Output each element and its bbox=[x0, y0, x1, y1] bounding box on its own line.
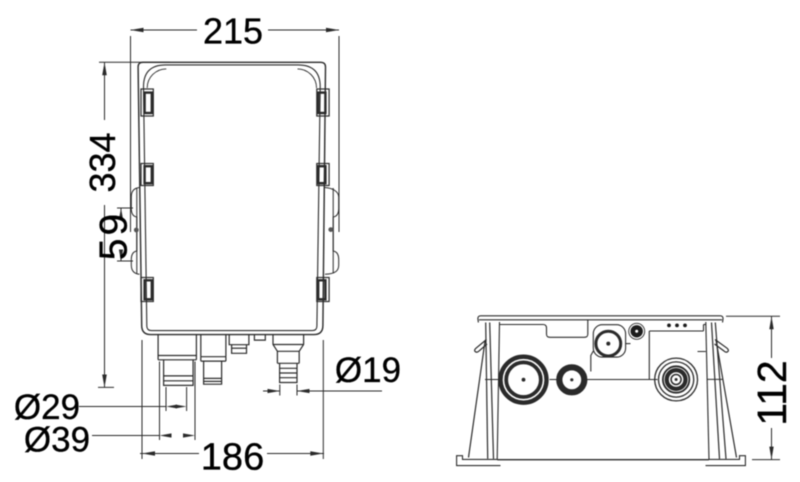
svg-text:112: 112 bbox=[749, 360, 795, 425]
svg-text:Ø19: Ø19 bbox=[335, 351, 401, 390]
svg-text:186: 186 bbox=[201, 437, 264, 479]
svg-text:334: 334 bbox=[82, 132, 123, 192]
svg-text:215: 215 bbox=[203, 11, 263, 52]
svg-text:59: 59 bbox=[92, 211, 135, 260]
svg-text:Ø39: Ø39 bbox=[24, 421, 90, 460]
